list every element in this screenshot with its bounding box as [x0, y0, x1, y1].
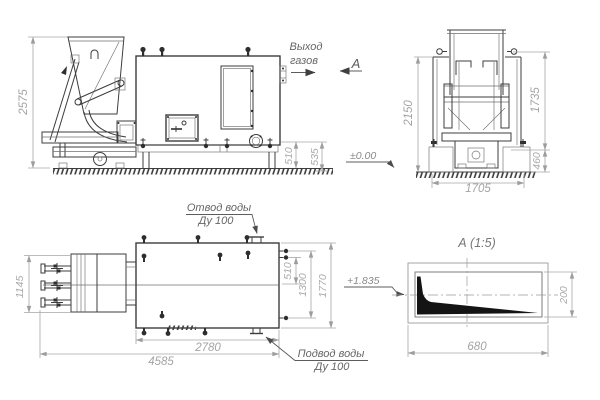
water-outlet-text-line1: Отвод воды [187, 202, 251, 214]
valve-cross-3 [51, 297, 63, 308]
dimension-535: 535 [309, 142, 328, 171]
dim-2780-text: 2780 [194, 342, 221, 354]
dim-1735-text: 1735 [530, 87, 542, 113]
dim-510f-text: 510 [283, 147, 295, 165]
dim-460-text: 460 [531, 152, 543, 170]
side-panels [444, 84, 509, 128]
dim-1705-text: 1705 [465, 183, 491, 195]
lift-arm [50, 55, 125, 142]
dim-2150-text: 2150 [403, 100, 415, 127]
end-ground-line [416, 172, 536, 178]
dim-1300-text: 1300 [297, 273, 309, 297]
dimension-460: 460 [531, 150, 550, 172]
section-a-label: А [351, 56, 361, 71]
hook-brackets [456, 61, 497, 75]
gas-outlet-stub [280, 66, 286, 83]
valve-manifold [41, 263, 71, 308]
dim-200-text: 200 [558, 286, 570, 305]
level-mark-1835: +1.835 [344, 275, 404, 295]
dim-4585-text: 4585 [148, 356, 174, 368]
hopper-handle-icon [91, 50, 98, 59]
feeder-drum [71, 254, 136, 312]
dim-2575-text: 2575 [18, 89, 30, 116]
level-1835-text: +1.835 [347, 275, 380, 287]
dimension-2150: 2150 [403, 57, 433, 172]
drive-unit [94, 153, 107, 166]
dim-1770-text: 1770 [317, 274, 329, 298]
end-view: 2150 1735 460 1705 ±0.00 [346, 30, 550, 195]
water-inlet-text-line2: Ду 100 [313, 361, 351, 373]
feed-hopper [68, 37, 124, 114]
plan-view: 1145 2780 4585 510 1300 [14, 202, 404, 373]
water-inlet-flange [250, 328, 263, 334]
valve-cross-1 [51, 263, 63, 274]
gas-outlet-label-line2: газов [290, 55, 318, 67]
lifting-eyes [140, 47, 250, 57]
gas-outlet-annotation: Выход газов [289, 41, 322, 73]
foundation-blocks [429, 139, 530, 172]
access-door [221, 66, 253, 129]
front-view: 2575 [18, 37, 333, 175]
section-a-marker: А [340, 56, 362, 71]
anchor-bolts [431, 139, 526, 147]
water-outlet-label: Отвод воды Ду 100 [186, 202, 257, 234]
dim-535-text: 535 [309, 148, 321, 166]
zero-level-text: ±0.00 [350, 150, 376, 162]
machine-drawing-canvas: 2575 [0, 0, 600, 400]
dim-1145-text: 1145 [14, 276, 26, 299]
inspection-hatch [166, 115, 198, 141]
water-outlet-flange [249, 237, 264, 243]
gas-outlet-label-line1: Выход [289, 41, 322, 53]
drawing-sheet: 2575 [0, 0, 600, 400]
water-inlet-label: Подвод воды Ду 100 [266, 337, 368, 373]
side-rollers [437, 49, 517, 55]
dimension-2575: 2575 [18, 37, 70, 168]
dimension-1300: 1300 [288, 251, 316, 318]
dimension-4585: 4585 [40, 310, 279, 368]
main-body [136, 56, 280, 168]
zero-level-mark: ±0.00 [346, 150, 394, 168]
connecting-duct [117, 121, 136, 143]
detail-view-a: А (1:5) 680 200 [392, 236, 577, 357]
plan-lifting-eyes [142, 235, 289, 336]
dim-510p-text: 510 [282, 262, 294, 280]
dim-680-text: 680 [467, 341, 487, 353]
water-outlet-text-line2: Ду 100 [197, 215, 235, 227]
dimension-200: 200 [544, 272, 577, 317]
detail-a-title: А (1:5) [457, 236, 496, 250]
water-inlet-text-line1: Подвод воды [298, 348, 365, 360]
valve-cross-2 [51, 280, 63, 291]
plan-hatch-strip [168, 326, 196, 331]
ground-line [53, 169, 333, 175]
end-base-carriage [442, 133, 511, 168]
arm-arrow-icon [61, 66, 67, 75]
scraper-blade-profile [417, 277, 538, 315]
dimension-680: 680 [408, 325, 548, 357]
